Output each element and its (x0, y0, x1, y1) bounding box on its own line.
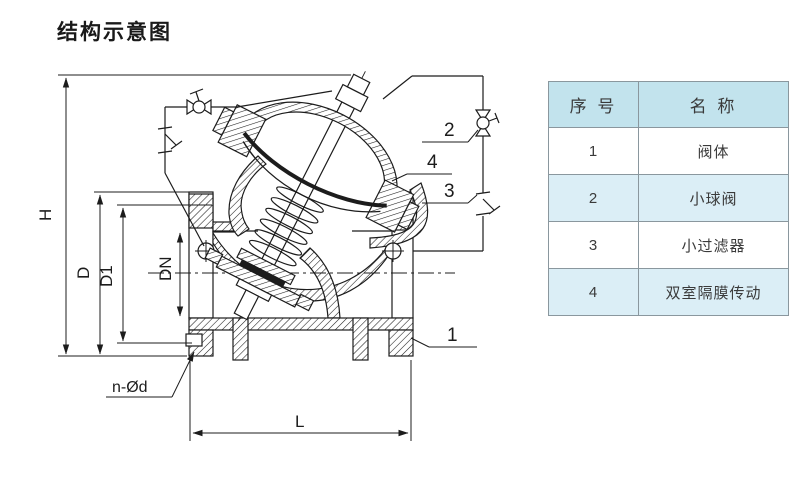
table-row: 3 小过滤器 (549, 222, 789, 269)
dim-label-L: L (295, 412, 304, 431)
table-row: 4 双室隔膜传动 (549, 269, 789, 316)
dim-label-bolt-holes: n-Ød (112, 379, 148, 396)
dim-label-DN: DN (156, 256, 175, 281)
row-4-index: 4 (549, 269, 639, 316)
table-row: 1 阀体 (549, 128, 789, 175)
row-2-index: 2 (549, 175, 639, 222)
col-header-index: 序 号 (549, 82, 639, 128)
callout-3: 3 (444, 181, 455, 202)
row-3-name: 小过滤器 (639, 222, 789, 269)
ball-valve-symbol-left (187, 89, 211, 114)
callout-2: 2 (444, 120, 455, 141)
filter-symbol-right (476, 192, 500, 215)
row-1-index: 1 (549, 128, 639, 175)
row-1-name: 阀体 (639, 128, 789, 175)
row-3-index: 3 (549, 222, 639, 269)
col-header-name: 名 称 (639, 82, 789, 128)
dim-label-H: H (36, 209, 55, 221)
table-row: 2 小球阀 (549, 175, 789, 222)
callout-4: 4 (427, 152, 438, 173)
filter-symbol-left (158, 127, 182, 153)
parts-table: 序 号 名 称 1 阀体 2 小球阀 3 小过滤器 4 双室隔膜传动 (548, 81, 789, 316)
row-2-name: 小球阀 (639, 175, 789, 222)
dim-label-D: D (74, 267, 93, 279)
row-4-name: 双室隔膜传动 (639, 269, 789, 316)
ball-valve-symbol-right (476, 110, 499, 136)
bolt-hole-leader (172, 352, 194, 397)
valve-stem (256, 102, 355, 278)
dim-label-D1: D1 (97, 265, 116, 287)
table-header-row: 序 号 名 称 (549, 82, 789, 128)
callout-1: 1 (447, 325, 458, 346)
